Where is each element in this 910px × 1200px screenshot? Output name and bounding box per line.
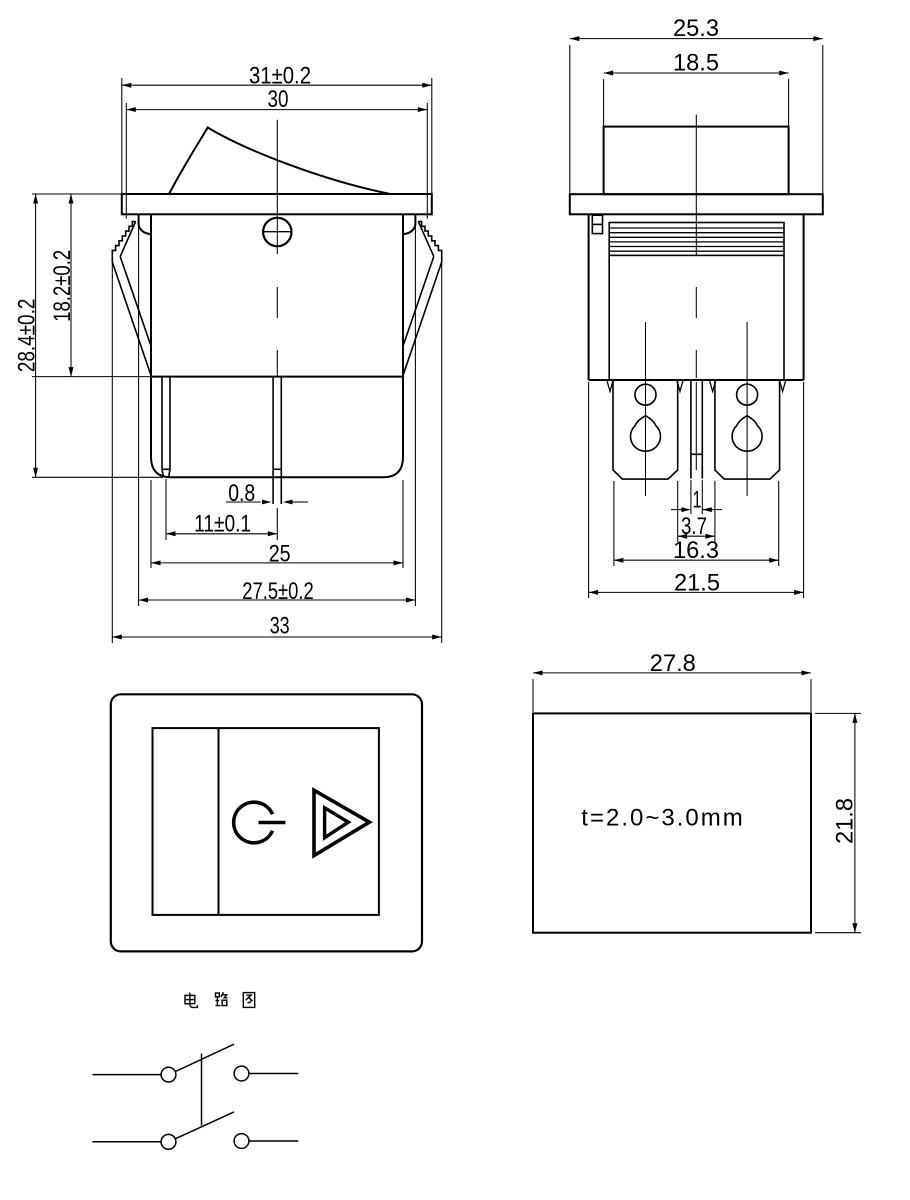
- svg-text:28.4±0.2: 28.4±0.2: [14, 299, 41, 373]
- svg-text:1: 1: [693, 487, 702, 514]
- svg-text:25: 25: [269, 541, 291, 568]
- svg-text:18.5: 18.5: [673, 50, 719, 77]
- svg-text:27.5±0.2: 27.5±0.2: [242, 578, 314, 605]
- svg-text:33: 33: [270, 613, 290, 640]
- svg-text:21.5: 21.5: [674, 569, 720, 596]
- svg-text:25.3: 25.3: [673, 15, 719, 42]
- svg-text:11±0.1: 11±0.1: [194, 511, 251, 538]
- svg-text:27.8: 27.8: [650, 650, 696, 677]
- svg-text:21.8: 21.8: [832, 798, 859, 844]
- svg-text:0.8: 0.8: [228, 480, 255, 507]
- svg-text:30: 30: [268, 86, 289, 113]
- svg-text:16.3: 16.3: [673, 537, 719, 564]
- svg-text:t=2.0~3.0mm: t=2.0~3.0mm: [581, 805, 744, 832]
- svg-text:18.2±0.2: 18.2±0.2: [49, 250, 76, 322]
- svg-text:3.7: 3.7: [681, 513, 707, 540]
